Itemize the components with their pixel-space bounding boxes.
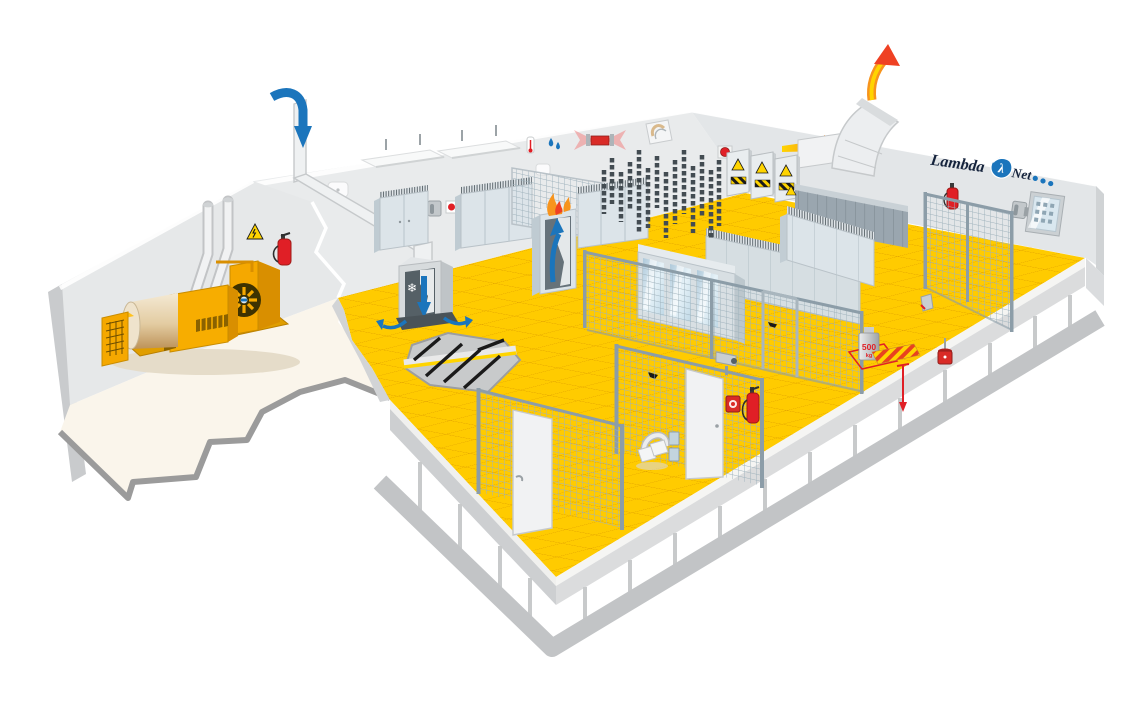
snowflake-icon: ❄ bbox=[407, 281, 417, 295]
right-wall-edge bbox=[1096, 186, 1104, 276]
generator-engine bbox=[170, 285, 238, 352]
wall-phone-icon bbox=[428, 201, 441, 216]
rack-group-1 bbox=[374, 185, 428, 253]
open-floor-tile bbox=[921, 294, 933, 311]
floor-load-value: 500 bbox=[862, 342, 876, 352]
security-door-front bbox=[513, 410, 552, 535]
door-handle-icon bbox=[715, 424, 719, 428]
logo-word-right: Net bbox=[1010, 165, 1034, 183]
electrical-panel bbox=[727, 149, 752, 196]
thermometer-icon bbox=[527, 137, 534, 153]
emergency-stop-icon bbox=[726, 396, 740, 412]
datacenter-isometric-illustration: ❄ bbox=[0, 0, 1143, 718]
security-door-inner bbox=[686, 369, 723, 479]
floor-load-unit: kg bbox=[866, 353, 872, 359]
electrical-panel bbox=[751, 152, 776, 199]
wall-vent-icon bbox=[646, 120, 672, 144]
